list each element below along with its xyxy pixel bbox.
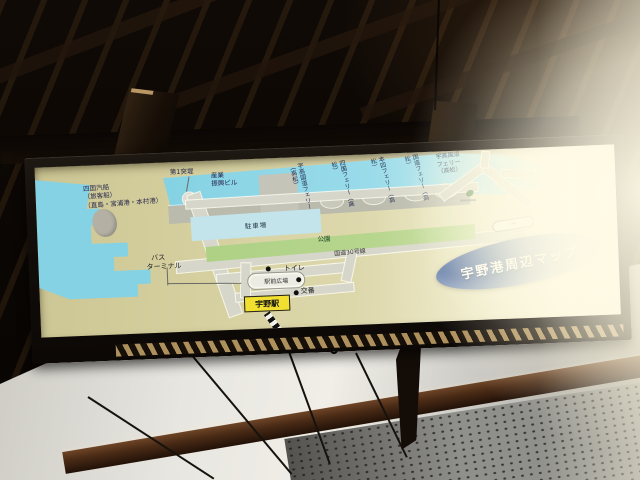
map-board: 駐車場 駅前広場 宇野駅 → 四国汽船 （旅客船） （直島・宮浦港・本村港） bbox=[35, 144, 621, 337]
photo-scene: 駐車場 駅前広場 宇野駅 → 四国汽船 （旅客船） （直島・宮浦港・本村港） bbox=[0, 0, 640, 480]
map-title: 宇野港周辺マップ bbox=[459, 240, 580, 282]
island-shape bbox=[90, 207, 119, 239]
label-shikoku-kisen: 四国汽船 （旅客船） （直島・宮浦港・本村港） bbox=[83, 179, 163, 210]
label-line: 振興ビル bbox=[211, 179, 237, 188]
parking-label: 駐車場 bbox=[244, 219, 267, 230]
label-route30: 国道30号線 bbox=[334, 248, 366, 259]
label-park: 公園 bbox=[317, 235, 330, 244]
plaza-label: 駅前広場 bbox=[264, 276, 288, 286]
label-sangyo-building: 産業 振興ビル bbox=[211, 171, 238, 189]
label-bus-terminal: バス ターミナル bbox=[146, 253, 182, 273]
label-police-box: 交番 bbox=[301, 287, 315, 297]
road-east-stub bbox=[501, 170, 535, 178]
station-label: 宇野駅 bbox=[255, 298, 279, 310]
uno-station-box: 宇野駅 bbox=[244, 295, 291, 313]
signboard: 駐車場 駅前広場 宇野駅 → 四国汽船 （旅客船） （直島・宮浦港・本村港） bbox=[24, 134, 632, 364]
label-toilet: トイレ bbox=[284, 264, 305, 274]
tree-icon bbox=[465, 189, 474, 197]
label-line: ターミナル bbox=[146, 262, 181, 272]
label-pier1: 第1突堤 bbox=[170, 167, 194, 176]
label-ferry-northeast: 宇高国道 フェリー （高松） bbox=[435, 151, 462, 176]
tiny-text-mark bbox=[460, 199, 476, 202]
capsule-arrow: → bbox=[510, 220, 516, 228]
